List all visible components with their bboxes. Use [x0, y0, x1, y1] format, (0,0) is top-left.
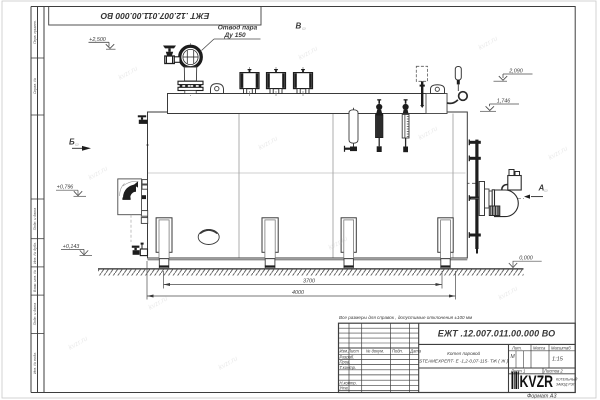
svg-text:Инв. № дубл.: Инв. № дубл. — [33, 242, 37, 264]
svg-text:Ду 150: Ду 150 — [223, 32, 246, 39]
svg-text:Отвод пара: Отвод пара — [218, 24, 258, 32]
svg-text:Справ. №: Справ. № — [33, 78, 37, 94]
svg-text:Подп.: Подп. — [392, 348, 403, 353]
svg-text:1:15: 1:15 — [552, 357, 564, 363]
svg-text:4000: 4000 — [292, 290, 304, 296]
svg-text:Перв. примен.: Перв. примен. — [33, 20, 37, 44]
svg-text:Дата: Дата — [409, 348, 422, 353]
svg-text:Подп. и дата: Подп. и дата — [33, 208, 37, 231]
svg-text:Лит.: Лит. — [511, 345, 522, 350]
svg-text:ЕЖТ .12.007.011.00.000 ВО: ЕЖТ .12.007.011.00.000 ВО — [438, 329, 556, 339]
svg-text:Пров.: Пров. — [340, 360, 351, 365]
svg-text:Утв.: Утв. — [340, 386, 349, 391]
svg-text:Формат А3: Формат А3 — [527, 394, 557, 400]
svg-text:(2): (2) — [302, 27, 306, 31]
svg-text:Т.контр.: Т.контр. — [340, 365, 357, 370]
svg-text:Изм.Лист: Изм.Лист — [340, 348, 360, 353]
svg-text:Масса: Масса — [533, 345, 546, 350]
svg-text:KVZR: KVZR — [520, 373, 554, 391]
svg-text:(2): (2) — [75, 143, 79, 147]
svg-text:Котел паровой: Котел паровой — [447, 350, 480, 356]
svg-text:ЗАВОД РЭП: ЗАВОД РЭП — [556, 383, 576, 387]
svg-text:ЕЖТ .12.007.011.00.000 ВО: ЕЖТ .12.007.011.00.000 ВО — [100, 11, 209, 21]
svg-text:3700: 3700 — [303, 279, 315, 285]
svg-text:КОТЕЛЬНЫЙ: КОТЕЛЬНЫЙ — [556, 378, 578, 382]
svg-text:Инв. № подл.: Инв. № подл. — [33, 352, 37, 374]
svg-text:В: В — [296, 22, 302, 31]
svg-text:+0,796: +0,796 — [57, 185, 74, 191]
svg-text:0,000: 0,000 — [519, 256, 533, 262]
svg-text:STEAMEXPERT- Е -1,2-0,07-115-: STEAMEXPERT- Е -1,2-0,07-115- ТЖ ( Ж ) — [419, 359, 509, 364]
svg-text:Все размеры для справок , допу: Все размеры для справок , допустимые отк… — [339, 315, 473, 320]
svg-text:Масштаб: Масштаб — [551, 345, 571, 350]
svg-text:Взам. инв. №: Взам. инв. № — [33, 270, 37, 292]
svg-text:Подп. и дата: Подп. и дата — [33, 303, 37, 326]
svg-text:№ докум.: № докум. — [366, 348, 384, 353]
svg-text:(2): (2) — [544, 189, 548, 193]
